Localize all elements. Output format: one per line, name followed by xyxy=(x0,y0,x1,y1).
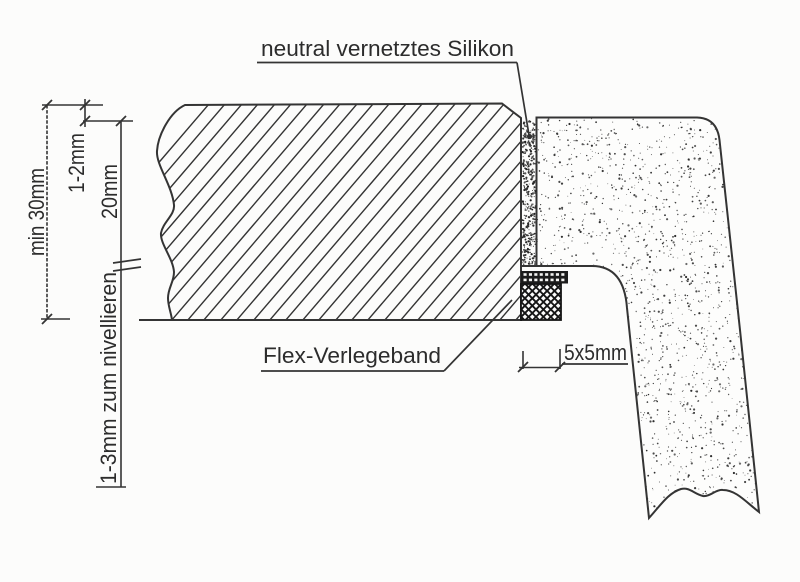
svg-text:5x5mm: 5x5mm xyxy=(564,340,627,365)
svg-text:1-2mm: 1-2mm xyxy=(64,133,89,193)
svg-text:neutral vernetztes Silikon: neutral vernetztes Silikon xyxy=(261,36,514,61)
svg-text:min 30mm: min 30mm xyxy=(24,168,49,256)
svg-text:Flex-Verlegeband: Flex-Verlegeband xyxy=(263,343,441,368)
svg-text:1-3mm zum nivellieren: 1-3mm zum nivellieren xyxy=(96,272,121,484)
svg-text:20mm: 20mm xyxy=(97,164,122,219)
